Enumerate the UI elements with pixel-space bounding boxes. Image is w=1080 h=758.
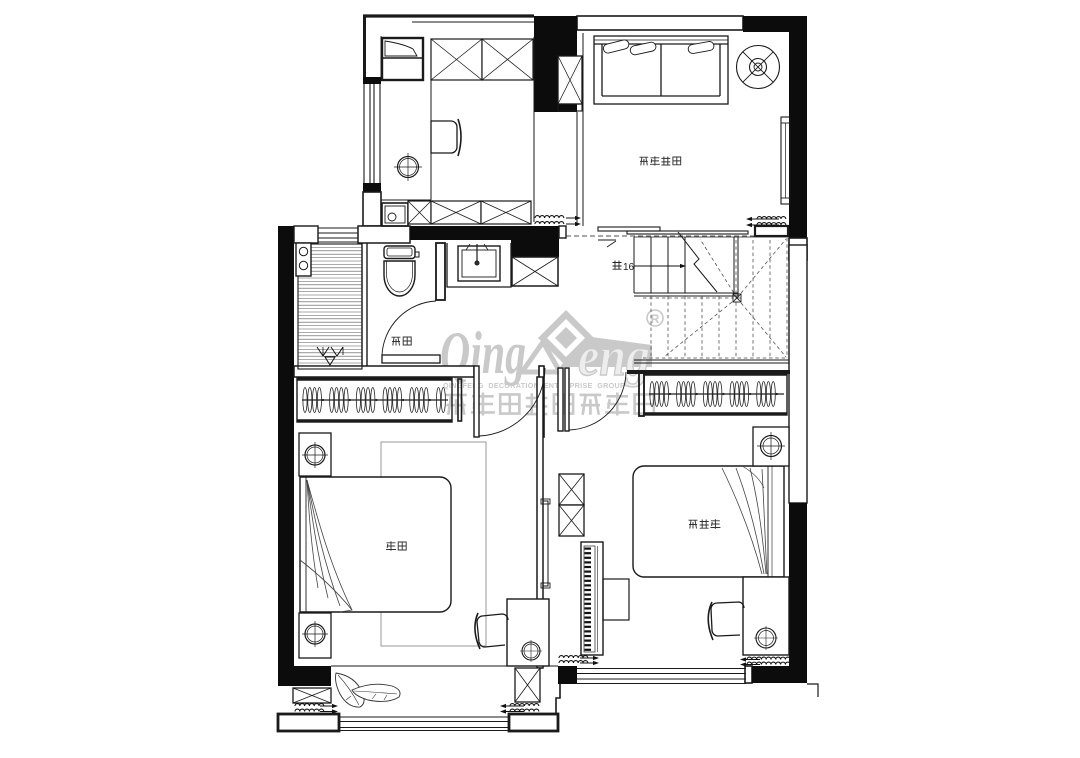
svg-text:16: 16 [623, 262, 635, 273]
svg-text:QINGFENG DECORATION ENTERPRI: QINGFENG DECORATION ENTERPRISE GROUP [443, 381, 625, 390]
svg-text:R: R [651, 312, 660, 326]
